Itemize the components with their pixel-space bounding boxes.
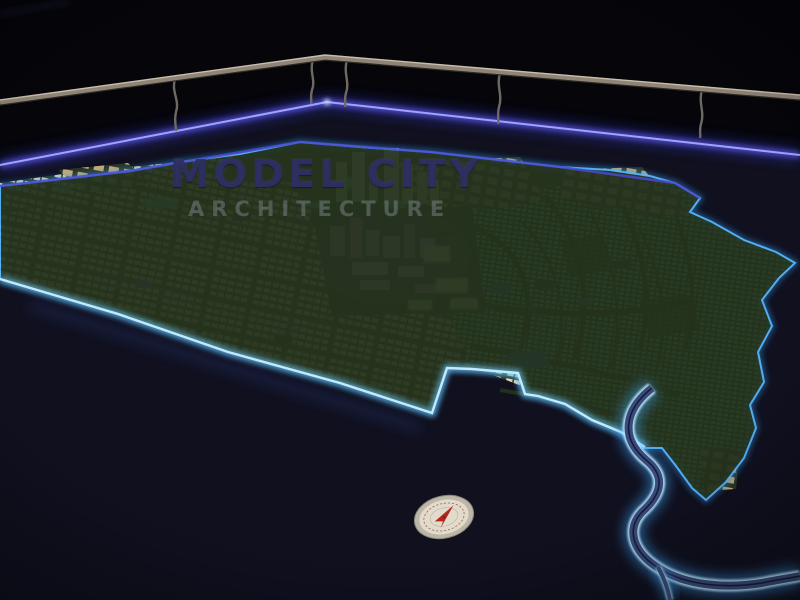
photo-city-scale-model: MODEL CITY ARCHITECTURE xyxy=(0,0,800,600)
scale-model-scene xyxy=(0,0,800,600)
edge-corner-hotspot xyxy=(324,99,330,105)
